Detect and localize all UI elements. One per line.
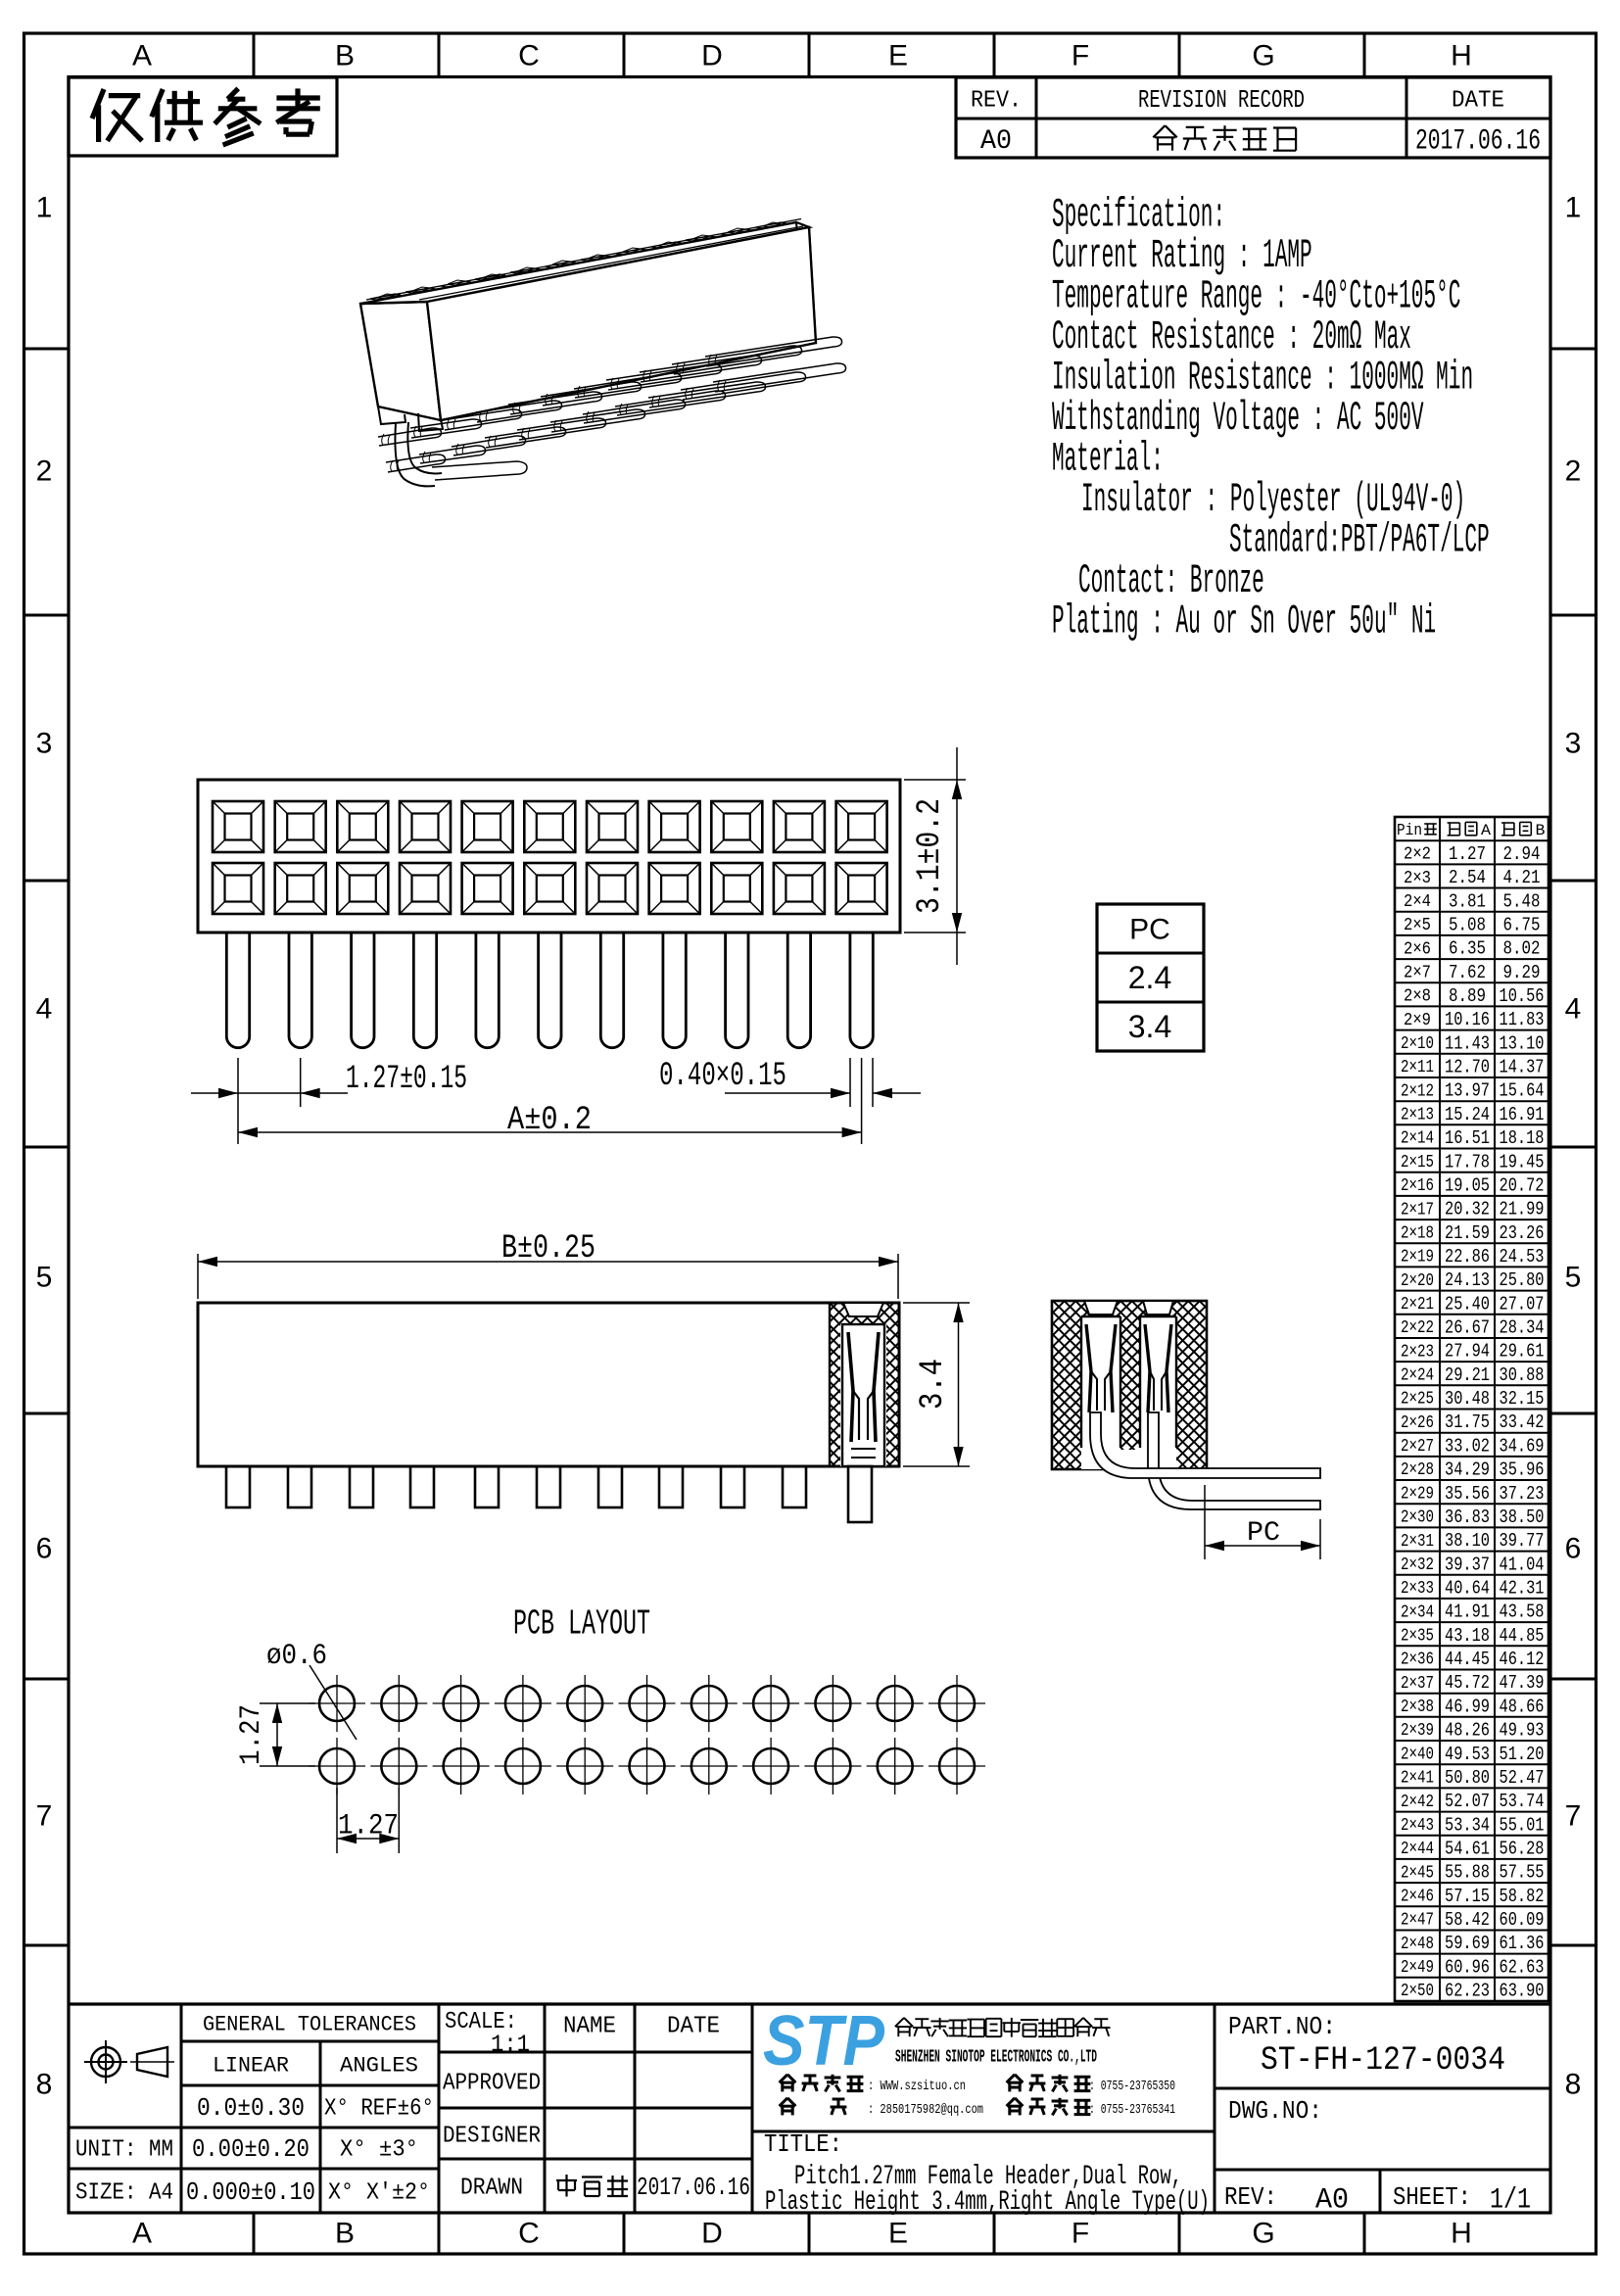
svg-text:58.42: 58.42 xyxy=(1445,1909,1490,1931)
svg-text:DATE: DATE xyxy=(667,2013,720,2039)
svg-text:2: 2 xyxy=(1565,455,1582,488)
svg-text:35.56: 35.56 xyxy=(1445,1483,1490,1505)
svg-text:8.89: 8.89 xyxy=(1449,985,1486,1007)
svg-text:2×47: 2×47 xyxy=(1401,1911,1434,1931)
svg-text:46.99: 46.99 xyxy=(1445,1696,1490,1717)
svg-text:21.59: 21.59 xyxy=(1445,1222,1490,1244)
svg-text:2×21: 2×21 xyxy=(1401,1295,1434,1315)
svg-text:ANGLES: ANGLES xyxy=(340,2054,418,2079)
svg-text:28.34: 28.34 xyxy=(1500,1317,1545,1339)
svg-text:7: 7 xyxy=(36,1800,53,1833)
svg-text:5: 5 xyxy=(36,1262,53,1294)
svg-text:29.61: 29.61 xyxy=(1500,1341,1545,1363)
svg-text:39.77: 39.77 xyxy=(1500,1530,1545,1552)
svg-text:52.47: 52.47 xyxy=(1500,1767,1545,1789)
svg-text:D: D xyxy=(701,2218,723,2250)
svg-text:26.67: 26.67 xyxy=(1445,1317,1490,1339)
svg-text:45.72: 45.72 xyxy=(1445,1672,1490,1694)
svg-text:1: 1 xyxy=(1565,192,1582,224)
svg-text:X° ±3°: X° ±3° xyxy=(340,2136,418,2163)
svg-text:18.18: 18.18 xyxy=(1500,1127,1545,1149)
svg-text:2×16: 2×16 xyxy=(1401,1176,1434,1196)
svg-text:36.83: 36.83 xyxy=(1445,1507,1490,1528)
svg-text:35.96: 35.96 xyxy=(1500,1459,1545,1481)
svg-text:A: A xyxy=(1481,822,1491,839)
svg-text:2×18: 2×18 xyxy=(1401,1223,1434,1243)
svg-text:33.42: 33.42 xyxy=(1500,1411,1545,1433)
svg-text:: 0755-23765350: : 0755-23765350 xyxy=(1089,2079,1175,2094)
svg-text:GENERAL TOLERANCES: GENERAL TOLERANCES xyxy=(203,2013,416,2037)
svg-text:E: E xyxy=(888,2218,908,2250)
svg-text:B: B xyxy=(335,2218,355,2250)
svg-text:SHENZHEN SINOTOP ELECTRONICS C: SHENZHEN SINOTOP ELECTRONICS CO.,LTD xyxy=(895,2047,1097,2067)
svg-text:53.74: 53.74 xyxy=(1500,1791,1545,1812)
svg-text:2×38: 2×38 xyxy=(1401,1698,1434,1717)
svg-text:25.40: 25.40 xyxy=(1445,1293,1490,1315)
svg-text:H: H xyxy=(1451,2218,1472,2250)
svg-text:X° REF±6°: X° REF±6° xyxy=(324,2095,434,2122)
svg-text:APPROVED: APPROVED xyxy=(443,2070,541,2096)
svg-text:SIZE: A4: SIZE: A4 xyxy=(75,2179,173,2206)
svg-text:23.26: 23.26 xyxy=(1500,1222,1545,1244)
svg-text:37.23: 37.23 xyxy=(1500,1483,1545,1505)
svg-text:2×25: 2×25 xyxy=(1401,1390,1434,1410)
svg-text:2.94: 2.94 xyxy=(1503,843,1541,865)
svg-text:2×40: 2×40 xyxy=(1401,1745,1434,1764)
svg-text:X° X'±2°: X° X'±2° xyxy=(328,2179,430,2206)
svg-text:17.78: 17.78 xyxy=(1445,1151,1490,1172)
svg-text:2×3: 2×3 xyxy=(1404,869,1431,888)
svg-text:34.69: 34.69 xyxy=(1500,1435,1545,1457)
svg-text:44.45: 44.45 xyxy=(1445,1649,1490,1670)
svg-text:12.70: 12.70 xyxy=(1445,1057,1490,1078)
svg-text:A0: A0 xyxy=(980,126,1012,157)
svg-text:C: C xyxy=(518,40,540,72)
svg-text:20.32: 20.32 xyxy=(1445,1199,1490,1220)
svg-text:3.4: 3.4 xyxy=(1128,1009,1171,1044)
svg-text:3.4: 3.4 xyxy=(915,1359,952,1410)
svg-text:2×7: 2×7 xyxy=(1404,964,1431,983)
svg-text:LINEAR: LINEAR xyxy=(213,2054,289,2079)
svg-text:E: E xyxy=(888,40,908,72)
svg-text:41.04: 41.04 xyxy=(1500,1554,1545,1575)
svg-text:2×30: 2×30 xyxy=(1401,1508,1434,1528)
svg-text:6: 6 xyxy=(1565,1533,1582,1565)
svg-text:5.08: 5.08 xyxy=(1449,915,1486,936)
svg-text:49.93: 49.93 xyxy=(1500,1720,1545,1742)
svg-text:9.29: 9.29 xyxy=(1503,962,1541,983)
svg-text:A: A xyxy=(132,40,152,72)
svg-text:C: C xyxy=(518,2218,540,2250)
svg-text:52.07: 52.07 xyxy=(1445,1791,1490,1812)
svg-text:5: 5 xyxy=(1565,1262,1582,1294)
svg-text:2×32: 2×32 xyxy=(1401,1555,1434,1575)
svg-text:: 0755-23765341: : 0755-23765341 xyxy=(1089,2102,1175,2118)
svg-text:19.05: 19.05 xyxy=(1445,1174,1490,1196)
svg-text:24.53: 24.53 xyxy=(1500,1246,1545,1268)
svg-text:53.34: 53.34 xyxy=(1445,1814,1490,1836)
svg-text:1:1: 1:1 xyxy=(491,2032,530,2058)
svg-text:60.96: 60.96 xyxy=(1445,1956,1490,1978)
svg-text:3: 3 xyxy=(1565,728,1582,760)
svg-text:2×6: 2×6 xyxy=(1404,939,1431,959)
svg-text:21.99: 21.99 xyxy=(1500,1199,1545,1220)
svg-text:SHEET:: SHEET: xyxy=(1393,2182,1471,2212)
svg-text:D: D xyxy=(701,40,723,72)
svg-text:: 2850175982@qq.com: : 2850175982@qq.com xyxy=(868,2102,983,2118)
svg-text:29.21: 29.21 xyxy=(1445,1364,1490,1386)
svg-text:3.1±0.2: 3.1±0.2 xyxy=(912,798,949,914)
svg-text:60.09: 60.09 xyxy=(1500,1909,1545,1931)
svg-text:2×17: 2×17 xyxy=(1401,1200,1434,1220)
svg-text:2×48: 2×48 xyxy=(1401,1935,1434,1954)
svg-text:2×33: 2×33 xyxy=(1401,1579,1434,1599)
svg-text:2×27: 2×27 xyxy=(1401,1437,1434,1457)
svg-text:32.15: 32.15 xyxy=(1500,1388,1545,1410)
svg-text:PC: PC xyxy=(1129,914,1170,946)
svg-text:1.27: 1.27 xyxy=(1449,843,1486,865)
svg-text:ø0.6: ø0.6 xyxy=(266,1640,327,1673)
svg-text:2×24: 2×24 xyxy=(1401,1366,1434,1386)
svg-text:Plastic Height 3.4mm,Right Ang: Plastic Height 3.4mm,Right Angle Type(U) xyxy=(765,2187,1210,2218)
svg-text:10.56: 10.56 xyxy=(1500,985,1545,1007)
svg-text:4: 4 xyxy=(36,993,53,1026)
svg-text:3.81: 3.81 xyxy=(1449,890,1486,912)
svg-text:43.58: 43.58 xyxy=(1500,1602,1545,1623)
svg-text:2×50: 2×50 xyxy=(1401,1982,1434,2001)
svg-text:41.91: 41.91 xyxy=(1445,1602,1490,1623)
svg-text:REVISION RECORD: REVISION RECORD xyxy=(1138,85,1305,115)
svg-text:2×11: 2×11 xyxy=(1401,1058,1434,1077)
svg-text:2017.06.16: 2017.06.16 xyxy=(1415,125,1541,159)
svg-text:46.12: 46.12 xyxy=(1500,1649,1545,1670)
svg-text:0.0±0.30: 0.0±0.30 xyxy=(197,2093,305,2123)
svg-text:55.88: 55.88 xyxy=(1445,1862,1490,1884)
svg-text:14.37: 14.37 xyxy=(1500,1057,1545,1078)
svg-text:59.69: 59.69 xyxy=(1445,1933,1490,1954)
svg-text:33.02: 33.02 xyxy=(1445,1435,1490,1457)
svg-text:11.83: 11.83 xyxy=(1500,1009,1545,1030)
svg-text:6: 6 xyxy=(36,1533,53,1565)
svg-text:40.64: 40.64 xyxy=(1445,1578,1490,1600)
svg-text:16.91: 16.91 xyxy=(1500,1104,1545,1125)
svg-text:13.97: 13.97 xyxy=(1445,1080,1490,1102)
svg-text:30.48: 30.48 xyxy=(1445,1388,1490,1410)
svg-text:4: 4 xyxy=(1565,993,1582,1026)
svg-text:2×45: 2×45 xyxy=(1401,1863,1434,1883)
svg-text:48.66: 48.66 xyxy=(1500,1696,1545,1717)
svg-text:48.26: 48.26 xyxy=(1445,1720,1490,1742)
svg-text:24.13: 24.13 xyxy=(1445,1269,1490,1291)
svg-text:7.62: 7.62 xyxy=(1449,962,1486,983)
svg-text:8.02: 8.02 xyxy=(1503,938,1541,960)
svg-text:57.55: 57.55 xyxy=(1500,1862,1545,1884)
svg-text:43.18: 43.18 xyxy=(1445,1625,1490,1647)
svg-text:2×39: 2×39 xyxy=(1401,1721,1434,1741)
svg-text:42.31: 42.31 xyxy=(1500,1578,1545,1600)
svg-text:2×9: 2×9 xyxy=(1404,1011,1431,1030)
svg-text:38.10: 38.10 xyxy=(1445,1530,1490,1552)
svg-text:2×4: 2×4 xyxy=(1404,892,1431,912)
svg-text:19.45: 19.45 xyxy=(1500,1151,1545,1172)
svg-text:2×10: 2×10 xyxy=(1401,1034,1434,1054)
svg-text:F: F xyxy=(1072,2218,1089,2250)
svg-text:8: 8 xyxy=(36,2069,53,2101)
svg-text:58.82: 58.82 xyxy=(1500,1886,1545,1907)
svg-text:2×19: 2×19 xyxy=(1401,1248,1434,1268)
svg-text:2×29: 2×29 xyxy=(1401,1484,1434,1504)
svg-text:PCB LAYOUT: PCB LAYOUT xyxy=(513,1604,650,1645)
svg-text:0.40×0.15: 0.40×0.15 xyxy=(659,1058,786,1095)
svg-text:F: F xyxy=(1072,40,1089,72)
svg-text:1.27±0.15: 1.27±0.15 xyxy=(346,1061,467,1098)
svg-text:49.53: 49.53 xyxy=(1445,1744,1490,1765)
svg-text:H: H xyxy=(1451,40,1472,72)
svg-text:2×31: 2×31 xyxy=(1401,1532,1434,1552)
svg-text:47.39: 47.39 xyxy=(1500,1672,1545,1694)
svg-text:1: 1 xyxy=(36,192,53,224)
svg-text:A: A xyxy=(132,2218,152,2250)
svg-text:62.63: 62.63 xyxy=(1500,1956,1545,1978)
svg-text:REV.: REV. xyxy=(971,87,1022,114)
svg-text:54.61: 54.61 xyxy=(1445,1839,1490,1860)
svg-text:2×20: 2×20 xyxy=(1401,1271,1434,1291)
svg-text:2×28: 2×28 xyxy=(1401,1460,1434,1480)
svg-text:DATE: DATE xyxy=(1452,87,1504,114)
svg-text:0.00±0.20: 0.00±0.20 xyxy=(192,2134,310,2164)
svg-text:13.10: 13.10 xyxy=(1500,1032,1545,1054)
svg-text:2017.06.16: 2017.06.16 xyxy=(637,2173,750,2202)
svg-text:2×15: 2×15 xyxy=(1401,1153,1434,1172)
svg-text:2×44: 2×44 xyxy=(1401,1840,1434,1859)
svg-text:2×2: 2×2 xyxy=(1404,845,1431,865)
svg-text:2×49: 2×49 xyxy=(1401,1958,1434,1978)
svg-text:A0: A0 xyxy=(1315,2184,1349,2218)
svg-text:NAME: NAME xyxy=(563,2013,616,2039)
svg-text:8: 8 xyxy=(1565,2069,1582,2101)
svg-text:15.64: 15.64 xyxy=(1500,1080,1545,1102)
svg-text:PC: PC xyxy=(1247,1518,1280,1549)
svg-text:2×34: 2×34 xyxy=(1401,1602,1434,1622)
svg-text:2×35: 2×35 xyxy=(1401,1627,1434,1647)
svg-text:57.15: 57.15 xyxy=(1445,1886,1490,1907)
svg-text:B: B xyxy=(1536,822,1546,839)
svg-text:39.37: 39.37 xyxy=(1445,1554,1490,1575)
svg-text:2×12: 2×12 xyxy=(1401,1081,1434,1101)
svg-text:1.27: 1.27 xyxy=(235,1704,268,1765)
svg-text:6.75: 6.75 xyxy=(1503,915,1541,936)
svg-text:61.36: 61.36 xyxy=(1500,1933,1545,1954)
svg-text:2×14: 2×14 xyxy=(1401,1129,1434,1149)
svg-text:50.80: 50.80 xyxy=(1445,1767,1490,1789)
svg-text:25.80: 25.80 xyxy=(1500,1269,1545,1291)
svg-text:51.20: 51.20 xyxy=(1500,1744,1545,1765)
svg-text:55.01: 55.01 xyxy=(1500,1814,1545,1836)
svg-text:UNIT: MM: UNIT: MM xyxy=(75,2136,173,2163)
svg-text:: WWW.szsituo.cn: : WWW.szsituo.cn xyxy=(868,2079,966,2094)
svg-text:2×8: 2×8 xyxy=(1404,987,1431,1007)
svg-text:DESIGNER: DESIGNER xyxy=(443,2123,541,2149)
svg-text:B±0.25: B±0.25 xyxy=(501,1230,596,1268)
svg-text:2×41: 2×41 xyxy=(1401,1769,1434,1789)
svg-text:16.51: 16.51 xyxy=(1445,1127,1490,1149)
svg-text:B: B xyxy=(335,40,355,72)
svg-text:2×13: 2×13 xyxy=(1401,1106,1434,1125)
svg-text:A±0.2: A±0.2 xyxy=(507,1102,592,1139)
svg-text:2×42: 2×42 xyxy=(1401,1793,1434,1812)
svg-text:2×37: 2×37 xyxy=(1401,1674,1434,1694)
svg-text:34.29: 34.29 xyxy=(1445,1459,1490,1481)
svg-text:G: G xyxy=(1252,40,1274,72)
svg-text:2.4: 2.4 xyxy=(1128,960,1171,995)
svg-text:11.43: 11.43 xyxy=(1445,1032,1490,1054)
svg-text:56.28: 56.28 xyxy=(1500,1839,1545,1860)
svg-text:REV:: REV: xyxy=(1224,2182,1277,2212)
svg-text:20.72: 20.72 xyxy=(1500,1174,1545,1196)
svg-text:TITLE:: TITLE: xyxy=(764,2129,842,2159)
svg-text:PART.NO:: PART.NO: xyxy=(1228,2012,1336,2041)
svg-text:2×22: 2×22 xyxy=(1401,1318,1434,1338)
svg-text:1.27: 1.27 xyxy=(338,1810,399,1843)
svg-text:63.90: 63.90 xyxy=(1500,1981,1545,2002)
svg-text:0.000±0.10: 0.000±0.10 xyxy=(186,2177,315,2207)
svg-text:31.75: 31.75 xyxy=(1445,1411,1490,1433)
svg-text:2×43: 2×43 xyxy=(1401,1816,1434,1836)
svg-text:6.35: 6.35 xyxy=(1449,938,1486,960)
svg-text:22.86: 22.86 xyxy=(1445,1246,1490,1268)
svg-text:2: 2 xyxy=(36,455,53,488)
svg-text:2×23: 2×23 xyxy=(1401,1342,1434,1362)
svg-text:ST-FH-127-0034: ST-FH-127-0034 xyxy=(1261,2042,1505,2080)
svg-text:3: 3 xyxy=(36,728,53,760)
svg-text:62.23: 62.23 xyxy=(1445,1981,1490,2002)
svg-text:15.24: 15.24 xyxy=(1445,1104,1490,1125)
svg-text:2×46: 2×46 xyxy=(1401,1888,1434,1907)
svg-text:4.21: 4.21 xyxy=(1503,867,1541,888)
svg-text:10.16: 10.16 xyxy=(1445,1009,1490,1030)
svg-text:1/1: 1/1 xyxy=(1490,2184,1531,2218)
svg-text:38.50: 38.50 xyxy=(1500,1507,1545,1528)
svg-text:DRAWN: DRAWN xyxy=(460,2175,523,2201)
svg-text:27.94: 27.94 xyxy=(1445,1341,1490,1363)
svg-text:27.07: 27.07 xyxy=(1500,1293,1545,1315)
svg-text:DWG.NO:: DWG.NO: xyxy=(1228,2096,1322,2126)
svg-text:7: 7 xyxy=(1565,1800,1582,1833)
svg-text:44.85: 44.85 xyxy=(1500,1625,1545,1647)
svg-text:5.48: 5.48 xyxy=(1503,890,1541,912)
svg-text:30.88: 30.88 xyxy=(1500,1364,1545,1386)
svg-text:2×36: 2×36 xyxy=(1401,1650,1434,1670)
svg-text:2×5: 2×5 xyxy=(1404,916,1431,935)
svg-text:G: G xyxy=(1252,2218,1274,2250)
svg-text:STP: STP xyxy=(763,2002,885,2081)
svg-text:Plating : Au or Sn Over 50u″ N: Plating : Au or Sn Over 50u″ Ni xyxy=(1052,598,1436,646)
svg-text:Standard:PBT/PA6T/LCP: Standard:PBT/PA6T/LCP xyxy=(1229,517,1490,564)
svg-text:2.54: 2.54 xyxy=(1449,867,1486,888)
svg-text:2×26: 2×26 xyxy=(1401,1413,1434,1433)
svg-text:Pin: Pin xyxy=(1397,822,1422,840)
